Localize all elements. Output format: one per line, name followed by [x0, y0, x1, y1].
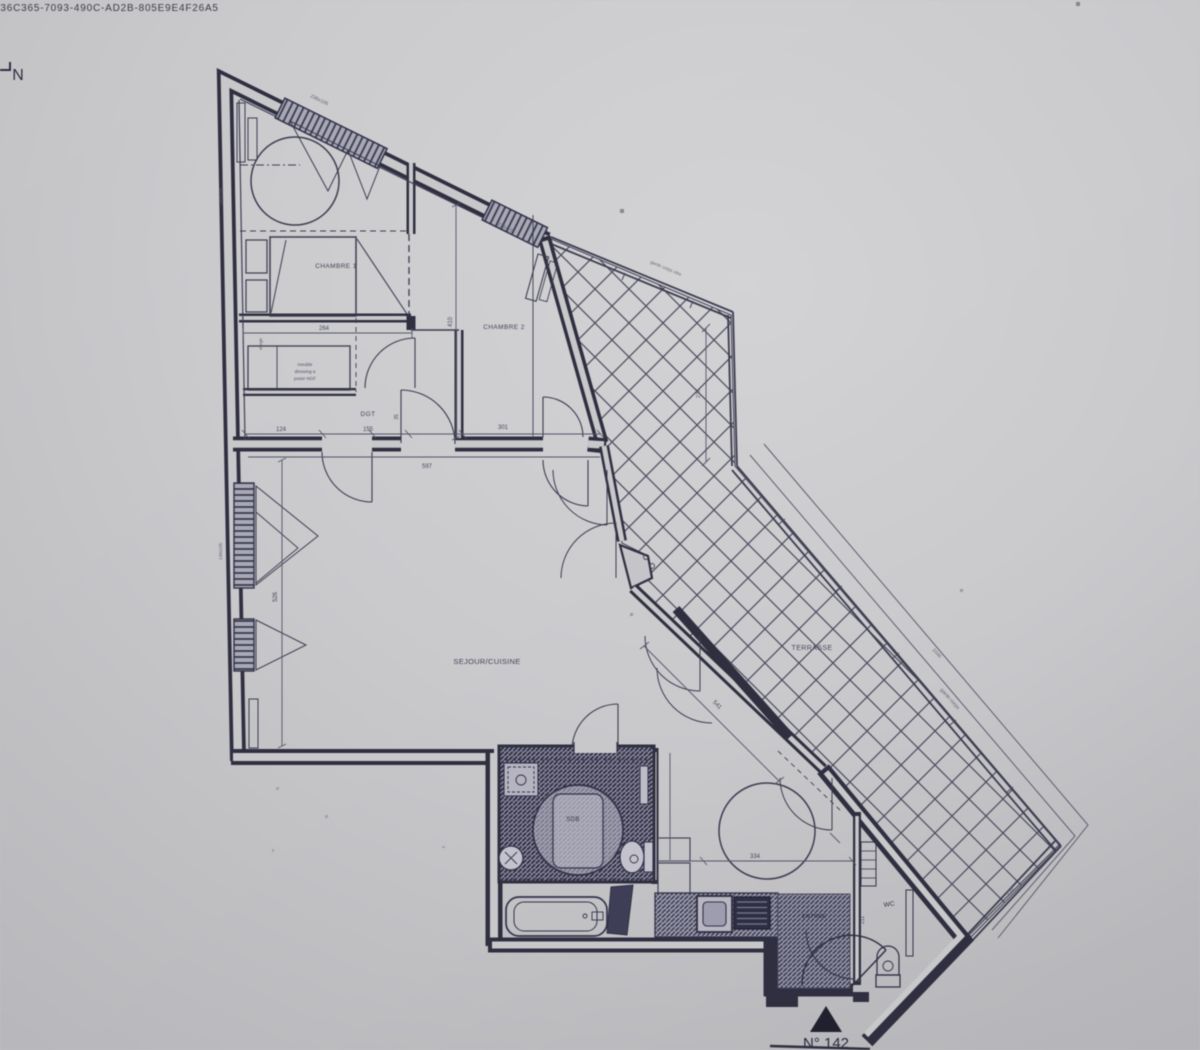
svg-text:TERRASSE: TERRASSE: [792, 645, 833, 652]
svg-text:276: 276: [696, 389, 702, 398]
svg-text:DGT: DGT: [361, 411, 376, 418]
svg-text:CHAMBRE 2: CHAMBRE 2: [483, 324, 525, 331]
svg-text:124: 124: [276, 427, 287, 433]
svg-text:allege: allege: [258, 337, 263, 350]
svg-text:SEJOUR/CUISINE: SEJOUR/CUISINE: [453, 657, 520, 666]
svg-text:410: 410: [448, 316, 454, 327]
svg-text:526: 526: [273, 591, 279, 602]
svg-text:264: 264: [319, 326, 330, 332]
svg-text:301: 301: [498, 425, 509, 431]
svg-text:ENTREE: ENTREE: [802, 914, 826, 920]
svg-text:140x105: 140x105: [218, 187, 223, 205]
svg-text:poser NGF: poser NGF: [294, 376, 316, 381]
svg-text:CHAMBRE 1: CHAMBRE 1: [315, 263, 357, 270]
svg-text:211: 211: [860, 916, 866, 924]
svg-text:836C365-7093-490C-AD2B-805E9E4: 836C365-7093-490C-AD2B-805E9E4F26A5: [0, 3, 219, 14]
svg-text:155: 155: [363, 427, 374, 433]
svg-text:140x105: 140x105: [218, 542, 223, 560]
svg-text:meuble: meuble: [298, 362, 313, 367]
svg-text:N: N: [12, 67, 24, 84]
svg-text:dressing a: dressing a: [295, 369, 316, 374]
svg-text:SDB: SDB: [566, 817, 580, 823]
svg-text:334: 334: [750, 854, 761, 860]
svg-text:35: 35: [394, 414, 400, 420]
svg-text:597: 597: [422, 464, 433, 470]
